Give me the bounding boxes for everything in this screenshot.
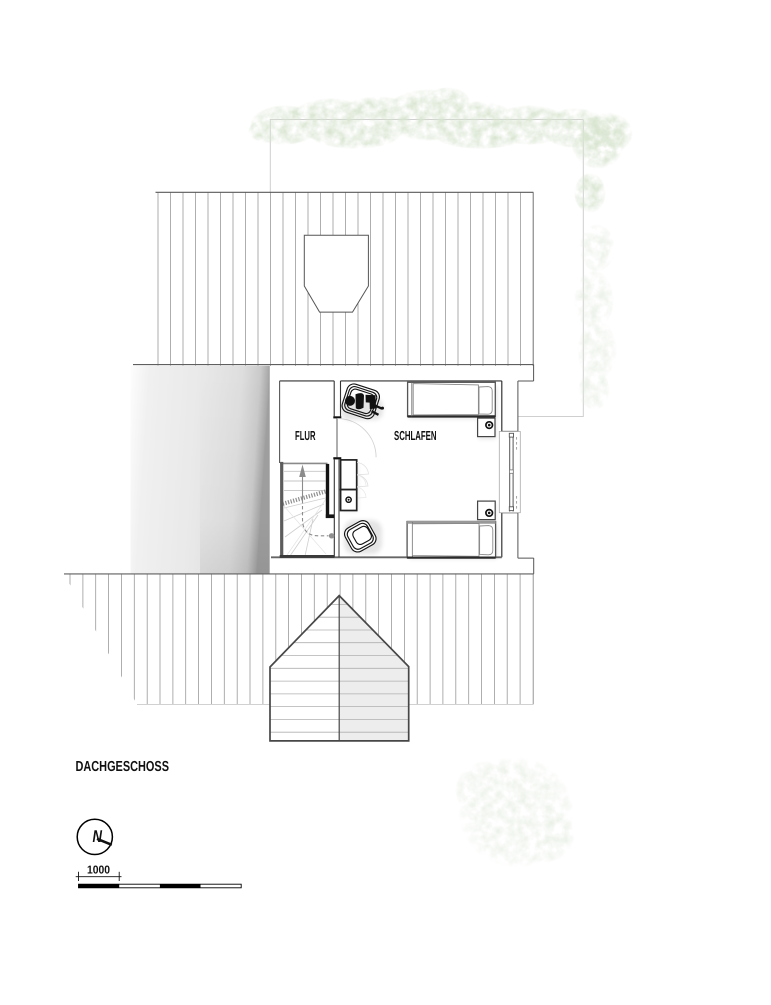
svg-text:N: N — [93, 827, 103, 846]
svg-text:FLUR: FLUR — [295, 428, 316, 443]
svg-text:DACHGESCHOSS: DACHGESCHOSS — [76, 759, 170, 775]
svg-text:SCHLAFEN: SCHLAFEN — [394, 428, 437, 443]
svg-text:1000: 1000 — [87, 864, 110, 876]
